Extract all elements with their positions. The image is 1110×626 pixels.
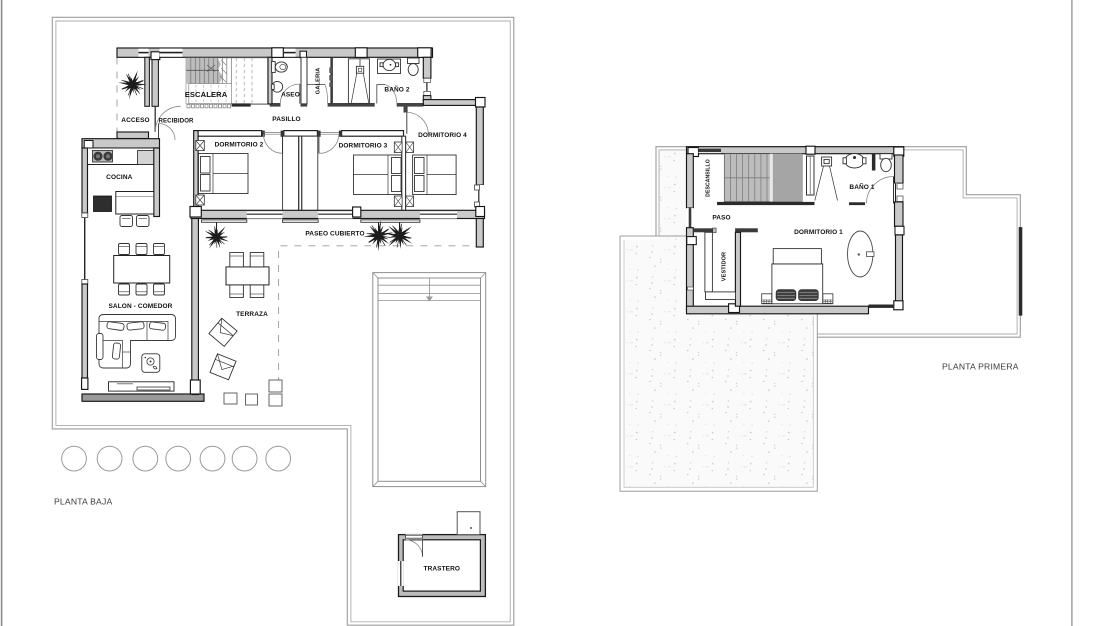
svg-text:PASO: PASO [712, 215, 730, 222]
svg-text:DORMITORIO 1: DORMITORIO 1 [794, 229, 843, 236]
svg-text:PASEO CUBIERTO: PASEO CUBIERTO [305, 231, 364, 238]
svg-text:COCINA: COCINA [106, 174, 132, 181]
svg-text:DESCANSILLO: DESCANSILLO [706, 159, 712, 197]
svg-text:BAÑO 2: BAÑO 2 [384, 85, 409, 94]
svg-text:PASILLO: PASILLO [272, 116, 300, 123]
svg-text:SALON - COMEDOR: SALON - COMEDOR [109, 303, 173, 310]
svg-text:ESCALERA: ESCALERA [185, 90, 228, 99]
svg-text:VESTIDOR: VESTIDOR [722, 252, 728, 281]
svg-text:BAÑO 1: BAÑO 1 [849, 182, 874, 191]
svg-text:DORMITORIO 2: DORMITORIO 2 [215, 142, 264, 149]
svg-text:ACCESO: ACCESO [121, 117, 149, 124]
svg-text:ASEO: ASEO [281, 92, 300, 99]
svg-text:DORMITORIO 3: DORMITORIO 3 [339, 143, 388, 150]
svg-text:PLANTA BAJA: PLANTA BAJA [54, 497, 112, 507]
svg-text:TERRAZA: TERRAZA [236, 311, 268, 318]
svg-text:TRASTERO: TRASTERO [424, 566, 461, 573]
svg-text:GALERIA: GALERIA [316, 67, 322, 94]
svg-text:RECIBIDOR: RECIBIDOR [158, 117, 194, 124]
svg-text:PLANTA PRIMERA: PLANTA PRIMERA [942, 362, 1019, 372]
svg-text:DORMITORIO 4: DORMITORIO 4 [418, 132, 467, 139]
